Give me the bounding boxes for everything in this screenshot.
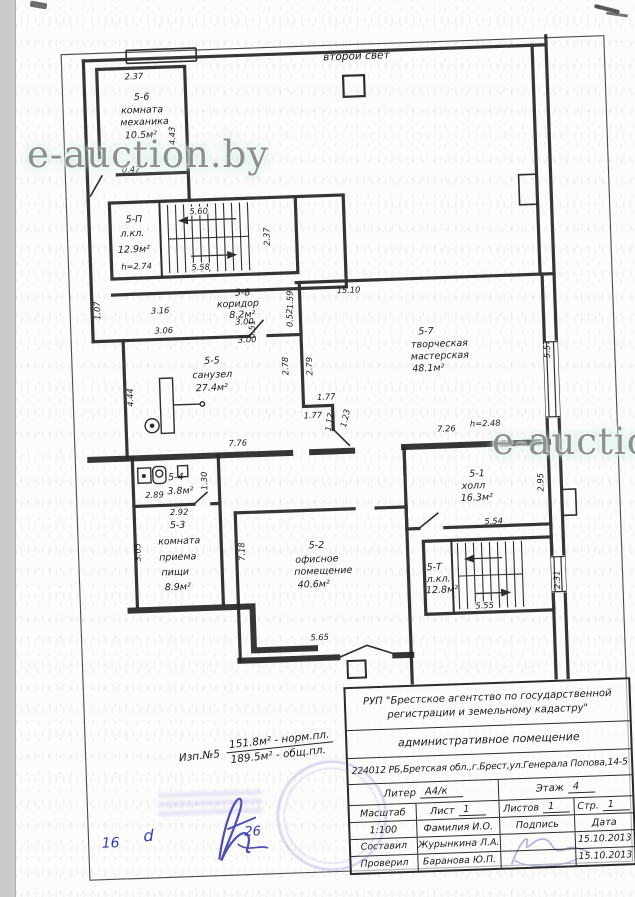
composed-name-cell: Журынкина Л.А.	[418, 835, 501, 853]
room-5-6-name2: механика	[120, 116, 169, 129]
room-5-4-area: 3.8м²	[167, 485, 194, 497]
scan-artifact-top-left	[30, 1, 48, 10]
room-5-3-id: 5-3	[170, 520, 186, 532]
room-5-1-id: 5-1	[469, 468, 485, 480]
dim-2-37-top: 2.37	[125, 71, 145, 82]
object-type: административное помещение	[398, 730, 580, 749]
dim-1-30: 1.30	[199, 472, 210, 491]
dim-5-57: 5.57	[541, 339, 552, 359]
dim-5-55: 5.55	[475, 600, 494, 611]
room-5p-area: 12.9м²	[118, 244, 151, 256]
room-5-2-name1: офисное	[295, 553, 339, 566]
dim-3-00-a: 3.00	[235, 316, 254, 327]
checked-date-cell: 15.10.2013	[576, 847, 635, 866]
room-5-2-id: 5-2	[308, 540, 324, 552]
room-5p-id: 5-П	[125, 214, 142, 226]
note-label: Изп.№5	[178, 748, 220, 764]
title-block: РУП "Брестское агентство по государствен…	[343, 677, 635, 875]
room-5p-height: h=2.74	[121, 261, 152, 272]
room-5p-name: л.кл.	[119, 228, 144, 240]
dim-15-10: 15.10	[336, 284, 360, 295]
checked-date: 15.10.2013	[578, 849, 632, 862]
date-col-header: Дата	[592, 816, 617, 828]
dim-5-65: 5.65	[310, 632, 329, 643]
page-label: Стр.	[577, 800, 599, 812]
sign-col-cell: Подпись	[500, 815, 576, 834]
room-5-2-name2: помещение	[294, 565, 353, 578]
dim-3-00-b: 3.00	[238, 334, 257, 345]
room-5-3-area: 8.9м²	[165, 581, 192, 593]
scanned-floor-plan-page: второй свет 5-6 комната механика 10.5м² …	[0, 0, 635, 897]
dim-2-79: 2.79	[304, 357, 315, 376]
date-col-cell: Дата	[575, 813, 634, 831]
room-5-1-name: холл	[460, 480, 485, 492]
dim-1-77-a: 1.77	[317, 391, 337, 402]
sheets-cell: Листов 1	[499, 798, 575, 817]
liter-label: Литер	[383, 787, 416, 799]
checked-name-cell: Баранова Ю.П.	[418, 851, 502, 870]
room-5t-name: л.кл.	[426, 573, 451, 585]
dim-2-31: 2.31	[551, 570, 562, 589]
checked-name: Баранова Ю.П.	[423, 854, 496, 868]
sheet-value: 1	[458, 803, 486, 816]
sign-col-header: Подпись	[516, 818, 560, 830]
second-light-label: второй свет	[323, 49, 391, 63]
handwritten-d: d	[143, 826, 154, 845]
dim-4-44: 4.44	[125, 388, 136, 407]
dim-1-23: 1.23	[338, 408, 352, 428]
room-5-7-id: 5-7	[418, 326, 434, 338]
dim-0-52: 0.52	[284, 308, 295, 327]
room-5-5-id: 5-5	[204, 355, 220, 367]
dim-3-16: 3.16	[151, 305, 170, 316]
dim-3-06: 3.06	[154, 325, 173, 336]
room-5t-area: 12.8м²	[426, 584, 459, 596]
composed-name: Журынкина Л.А.	[418, 837, 500, 851]
scan-edge-strip	[0, 0, 16, 897]
floor-value: 4	[568, 781, 596, 794]
name-col-cell: Фамилия И.О.	[417, 818, 501, 837]
dim-2-78: 2.78	[280, 357, 291, 376]
room-5-7-area: 48.1м²	[412, 363, 445, 375]
dim-5-58: 5.58	[191, 262, 210, 273]
room-5-7-name2: мастерская	[411, 350, 470, 363]
dim-0-47: 0.47	[122, 164, 142, 175]
room-5-3-name2: приема	[159, 551, 197, 563]
sheets-value: 1	[543, 800, 571, 813]
dim-7-26: 7.26	[437, 423, 456, 434]
composed-date: 15.10.2013	[578, 833, 632, 846]
liter-value: А4/к	[420, 785, 464, 799]
dim-5-60: 5.60	[189, 206, 208, 217]
dim-7-76: 7.76	[228, 437, 247, 448]
composed-date-cell: 15.10.2013	[576, 830, 635, 848]
room-5-6-name1: комната	[121, 104, 164, 116]
sheets-label: Листов	[503, 802, 539, 814]
dim-1-07: 1.07	[92, 300, 103, 320]
scan-content: второй свет 5-6 комната механика 10.5м² …	[0, 0, 635, 897]
room-5-6-id: 5-6	[134, 92, 150, 104]
checked-sign-cell	[501, 849, 577, 868]
second-light-column	[343, 75, 365, 97]
floor-label: Этаж	[536, 782, 564, 794]
handwritten-16: 16	[101, 835, 119, 852]
dim-2-95: 2.95	[535, 473, 546, 492]
dim-1-77-b: 1.77	[303, 410, 323, 421]
room-5-5-area: 27.4м²	[196, 382, 229, 394]
dim-7-18: 7.18	[236, 542, 247, 561]
composed-sign-cell	[501, 832, 576, 850]
room-5-4-id: 5-4	[168, 472, 184, 484]
name-col-header: Фамилия И.О.	[423, 821, 493, 834]
handwritten-26: 26	[244, 824, 261, 840]
room-5-3-name1: комната	[158, 535, 201, 547]
sheet-cell: Лист 1	[416, 801, 500, 820]
sheet-label: Лист	[430, 805, 455, 817]
dim-2-37-stair: 2.37	[261, 227, 272, 247]
room-5-8-id: 5-8	[235, 287, 251, 299]
dim-h-2-48: h=2.48	[470, 418, 501, 429]
dim-5-54: 5.54	[484, 516, 503, 527]
dim-1-59: 1.59	[284, 290, 295, 309]
room-5-6-area: 10.5м²	[125, 129, 158, 141]
dim-4-43: 4.43	[167, 126, 178, 145]
object-address: 224012 РБ,Бретская обл.,г.Брест,ул.Генер…	[351, 756, 628, 777]
rect-stamp	[158, 790, 263, 818]
checked-label: Проверил	[360, 857, 408, 870]
page-cell: Стр. 1	[574, 796, 633, 814]
dim-2-92: 2.92	[170, 507, 189, 518]
room-5t-id: 5-Т	[426, 562, 443, 574]
room-5-3-name3: пищи	[161, 567, 189, 579]
page-value: 1	[603, 798, 631, 811]
room-5-1-area: 16.3м²	[461, 492, 494, 504]
room-5-2-area: 40.6м²	[298, 579, 331, 591]
room-5-7-name1: творческая	[411, 338, 469, 351]
room-5-5-name: санузел	[192, 369, 232, 381]
dim-3-05: 3.05	[132, 543, 143, 562]
dim-2-89: 2.89	[145, 489, 164, 500]
